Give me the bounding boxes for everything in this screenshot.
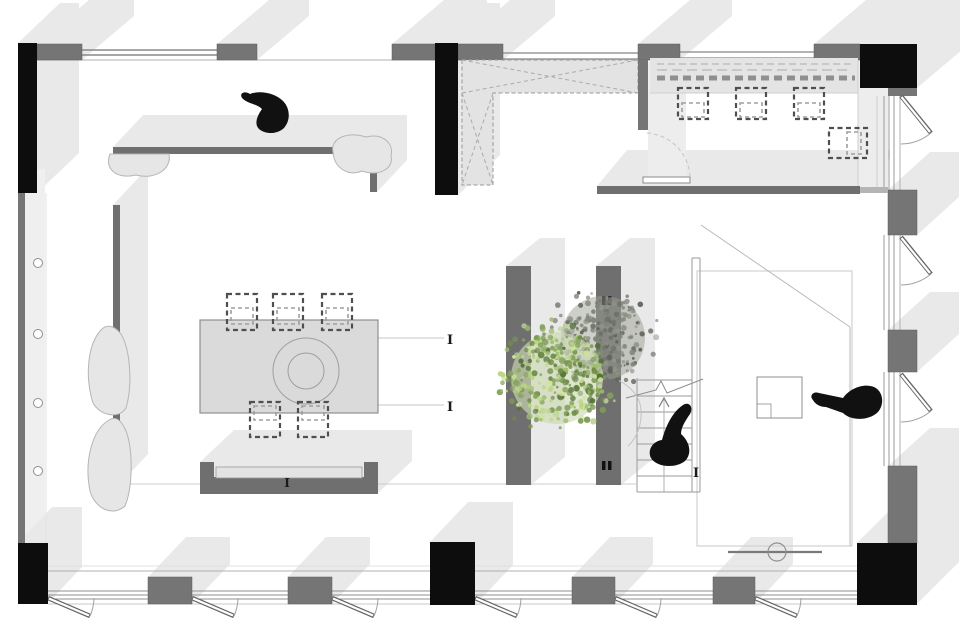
bottom-mullion — [288, 577, 332, 604]
window-handle — [34, 330, 43, 339]
loft-diagonal-line — [701, 225, 850, 327]
casement-sash-core — [902, 375, 931, 410]
curtain-blob — [108, 154, 169, 176]
pivot-hinge-mark — [608, 461, 612, 470]
right-mullion — [888, 190, 917, 235]
curtain-blob — [88, 326, 130, 415]
steel-column-mark: I — [447, 400, 453, 415]
casement-sash-core — [902, 238, 931, 273]
curtain-blob — [88, 418, 131, 511]
office-chair-seat — [740, 103, 762, 117]
steel-column-mark: I — [693, 466, 699, 481]
top-wall-segment — [458, 44, 503, 60]
top-wall-segment — [217, 44, 257, 60]
low-table — [757, 377, 802, 418]
pivot-hinge-mark — [602, 461, 606, 470]
structural-column — [857, 543, 917, 605]
window-handle — [34, 399, 43, 408]
right-mullion — [888, 330, 917, 372]
casement-sash-core — [616, 599, 656, 616]
floor-plan-canvas: IIII — [0, 0, 960, 635]
casement-sash-core — [49, 599, 89, 616]
office-bottom-wall — [597, 186, 860, 194]
top-wall-segment — [638, 44, 680, 60]
person-silhouette — [811, 386, 882, 419]
top-wall-segment — [814, 44, 860, 60]
office-left-wall — [638, 60, 648, 130]
office-bottom-wall-ext — [860, 187, 888, 193]
bench-armrest — [364, 462, 378, 494]
curtain-blob — [333, 135, 392, 173]
structural-column — [430, 542, 475, 605]
casement-swing-arc — [901, 133, 931, 144]
casement-sash-core — [193, 599, 233, 616]
structural-column — [860, 44, 917, 88]
casement-swing-arc — [234, 598, 238, 616]
steel-column-mark: I — [284, 476, 290, 490]
bottom-mullion — [572, 577, 615, 604]
structural-column — [435, 43, 458, 195]
casement-swing-arc — [657, 598, 661, 616]
cat-silhouette — [650, 404, 692, 466]
door-leaf — [643, 177, 690, 183]
casement-swing-arc — [374, 598, 378, 616]
top-wall-segment — [37, 44, 82, 60]
floor-plan-page: IIII — [0, 0, 960, 635]
casement-sash-core — [756, 599, 796, 616]
bench-armrest — [200, 462, 214, 494]
bottom-mullion — [148, 577, 192, 604]
office-chair-seat — [798, 103, 820, 117]
casement-swing-arc — [901, 411, 931, 422]
right-wall-solid — [888, 466, 917, 543]
window-handle — [34, 467, 43, 476]
steel-column-mark: I — [447, 333, 453, 348]
casement-swing-arc — [90, 598, 94, 616]
casement-swing-arc — [517, 598, 521, 616]
bottom-mullion — [713, 577, 755, 604]
casement-swing-arc — [901, 274, 931, 285]
window-handle — [34, 259, 43, 268]
table-disc-inner — [288, 353, 324, 389]
casement-swing-arc — [797, 598, 801, 616]
top-wall-segment — [392, 44, 435, 60]
structural-column — [18, 43, 37, 193]
casement-sash-core — [902, 97, 931, 132]
casement-sash-core — [476, 599, 516, 616]
left-wall — [18, 193, 25, 543]
casement-sash-core — [333, 599, 373, 616]
structural-column — [18, 543, 48, 604]
closet-body — [462, 60, 638, 185]
